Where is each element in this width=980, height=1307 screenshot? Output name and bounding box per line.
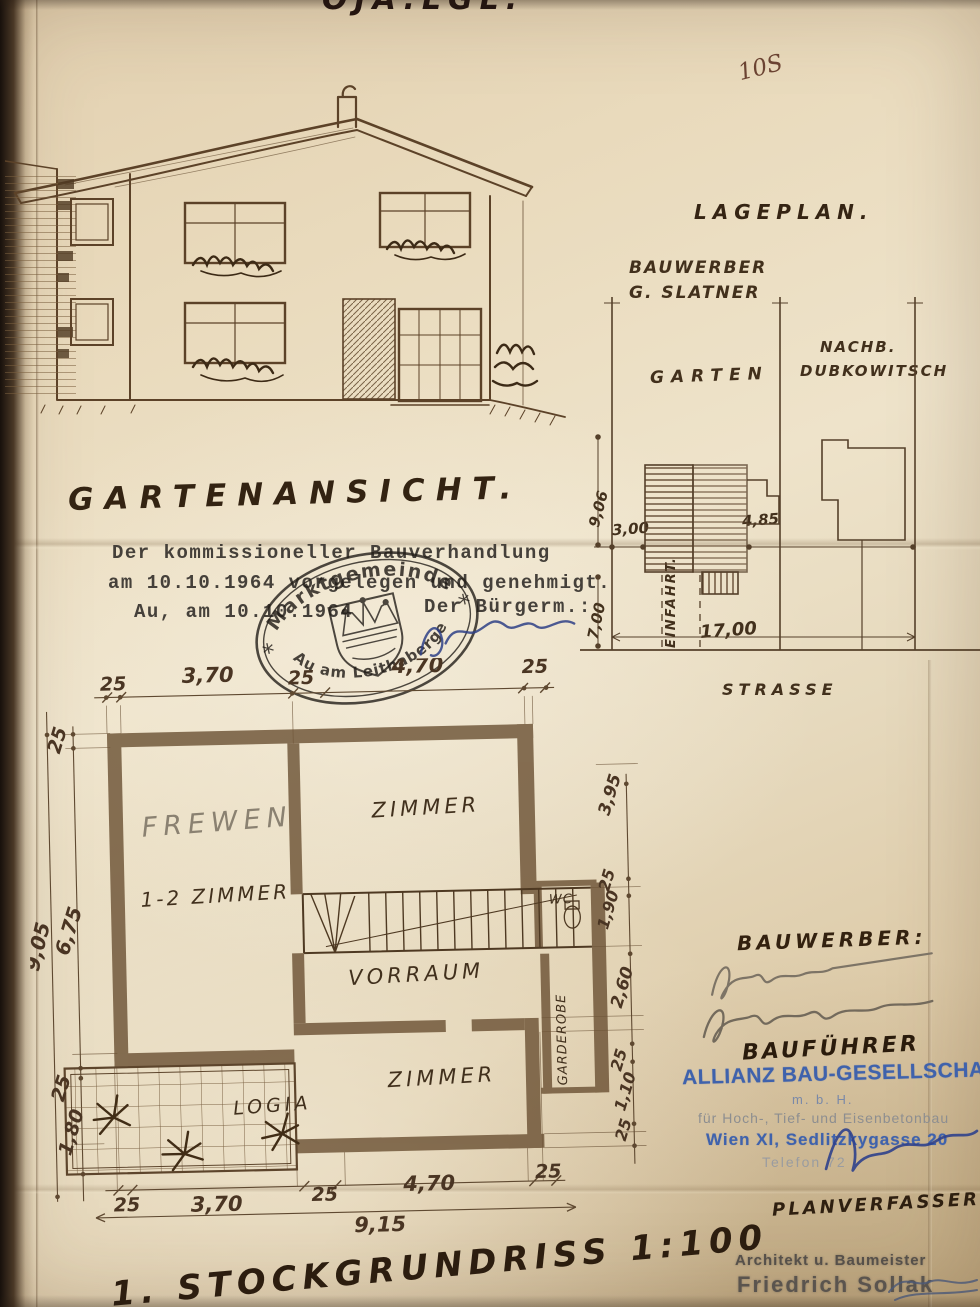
room-label-12zimmer: 1-2 ZIMMER: [140, 879, 291, 912]
garden-elevation-drawing: [5, 75, 580, 440]
room-label-logia: LOGIA: [232, 1092, 312, 1120]
dim-top-5: 25: [521, 656, 548, 679]
room-label-frewen: FREWEN: [141, 802, 294, 844]
dim-bottom-total: 9,15: [354, 1212, 406, 1237]
dim-bottom-1: 25: [113, 1194, 140, 1217]
room-label-zimmer-top: ZIMMER: [370, 792, 481, 822]
dim-right-1: 3,95: [595, 772, 626, 818]
dim-bottom-5: 25: [535, 1160, 562, 1183]
signature-baufuehrer: [814, 1097, 980, 1194]
dim-bottom-2: 3,70: [190, 1192, 242, 1217]
dim-bottom-4: 4,70: [402, 1171, 455, 1196]
siteplan-applicant-label: BAUWERBER: [629, 258, 767, 278]
signature-architect: [885, 1262, 980, 1307]
dim-right-4: 2,60: [607, 964, 638, 1010]
dim-top-2: 3,70: [181, 663, 233, 688]
company-name-stamp: ALLIANZ BAU-GESELLSCHAFT: [682, 1058, 980, 1091]
room-label-wc: WC: [549, 892, 573, 908]
floorplan-container: FREWEN 1-2 ZIMMER ZIMMER VORRAUM WC GARD…: [24, 653, 687, 1248]
elevation-title: GARTENANSICHT.: [68, 470, 523, 518]
corner-note: OJA.LGL.: [322, 0, 524, 17]
dim-right-7: 25: [611, 1116, 636, 1143]
dim-top-1: 25: [100, 673, 127, 696]
scanned-building-plan: OJA.LGL. 10S: [0, 0, 980, 1307]
room-label-vorraum: VORRAUM: [348, 958, 485, 990]
room-label-zimmer-bottom: ZIMMER: [386, 1062, 497, 1092]
dim-right-5: 25: [606, 1046, 631, 1073]
company-mbh: m. b. H.: [792, 1092, 854, 1107]
dim-left-2: 6,75: [50, 904, 87, 958]
dim-bottom-3: 25: [311, 1183, 338, 1206]
room-label-garderobe: GARDEROBE: [554, 994, 571, 1086]
floorplan-drawing: FREWEN 1-2 ZIMMER ZIMMER VORRAUM WC GARD…: [24, 653, 687, 1248]
dim-top-3: 25: [288, 667, 315, 690]
dim-right-6: 1,10: [610, 1070, 640, 1113]
siteplan-title: LAGEPLAN.: [694, 200, 874, 224]
siteplan-drawing: [580, 285, 980, 715]
dim-left-1: 25: [43, 724, 72, 756]
page-number-note: 10S: [736, 50, 786, 86]
